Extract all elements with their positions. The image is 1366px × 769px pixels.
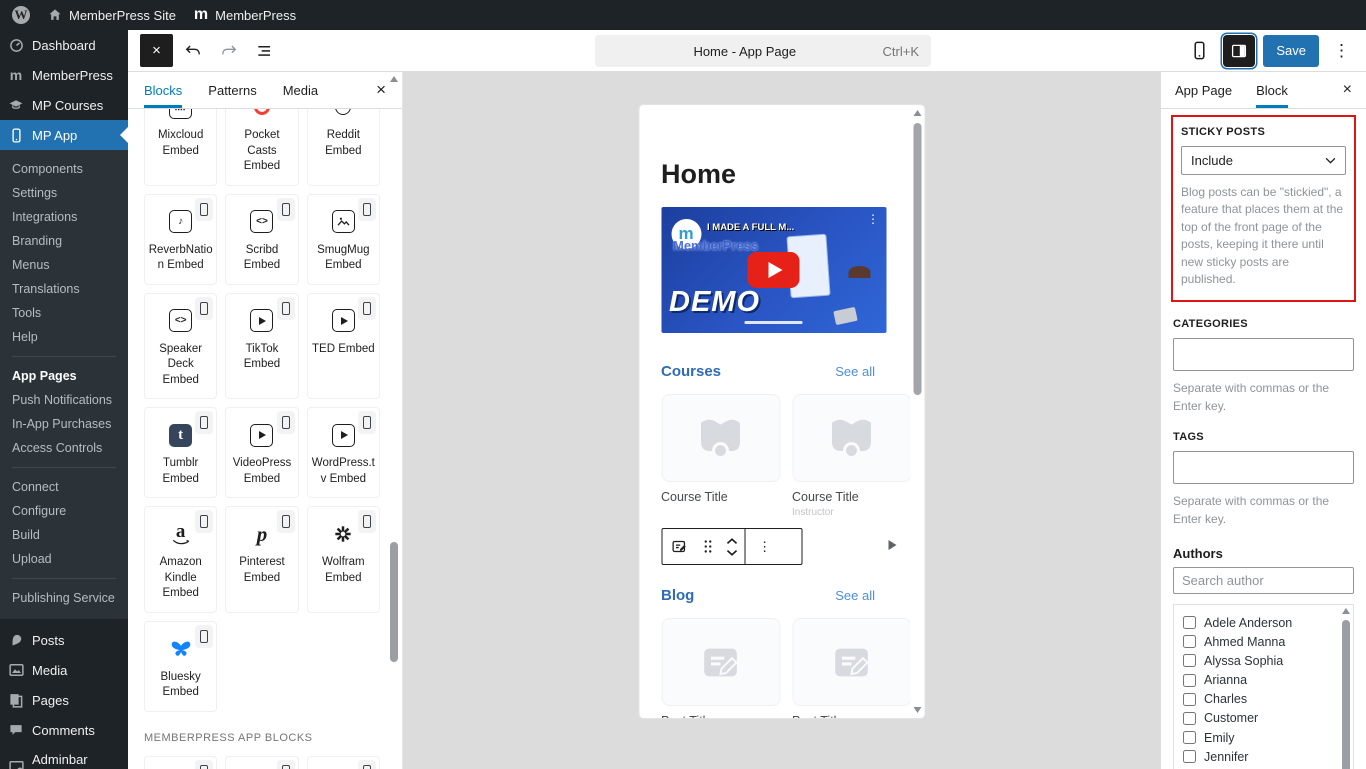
scroll-up-icon[interactable] bbox=[913, 110, 921, 116]
block-label: Wolfram Embed bbox=[311, 555, 376, 586]
author-option[interactable]: Jennifer bbox=[1183, 747, 1335, 766]
tags-help: Separate with commas or the Enter key. bbox=[1173, 493, 1354, 528]
command-shortcut: Ctrl+K bbox=[883, 44, 919, 59]
admin-bar: W MemberPress Site m MemberPress bbox=[0, 0, 1366, 30]
image-icon bbox=[332, 208, 355, 236]
memberpress-icon: m bbox=[8, 67, 24, 83]
settings-sidebar-toggle[interactable] bbox=[1223, 35, 1255, 67]
pages-icon bbox=[8, 692, 24, 708]
video-title: I MADE A FULL M... bbox=[707, 222, 794, 233]
submenu-divider bbox=[12, 356, 116, 357]
categories-help: Separate with commas or the Enter key. bbox=[1173, 380, 1354, 415]
submenu-item-publishing-service[interactable]: Publishing Service bbox=[0, 586, 128, 610]
scrollbar-thumb[interactable] bbox=[390, 542, 398, 662]
document-title: Home - App Page bbox=[607, 44, 883, 59]
list-view-button[interactable] bbox=[249, 35, 281, 67]
editor-region: × Home - App Page Ctrl+K S bbox=[128, 30, 1366, 769]
tumblr-icon: t bbox=[169, 421, 192, 449]
block-options-button[interactable]: ⋮ bbox=[745, 529, 784, 564]
block-card-pocket-casts[interactable]: Pocket Casts Embed bbox=[225, 109, 298, 186]
post-edit-icon bbox=[670, 538, 688, 555]
mobile-badge-icon bbox=[358, 411, 376, 434]
phone-icon bbox=[8, 127, 24, 143]
block-card-tiktok[interactable]: TikTok Embed bbox=[225, 293, 298, 400]
course-card-list bbox=[661, 394, 910, 482]
sidebar-item-pages[interactable]: Pages bbox=[0, 685, 128, 715]
submenu-item-menus[interactable]: Menus bbox=[0, 253, 128, 277]
move-up-down-icon bbox=[726, 537, 739, 557]
block-label: TED Embed bbox=[312, 342, 375, 358]
author-option[interactable]: Adele Anderson bbox=[1183, 613, 1335, 632]
submenu-item-push-notifications[interactable]: Push Notifications bbox=[0, 388, 128, 412]
tags-input[interactable] bbox=[1173, 451, 1354, 484]
music-note-icon: ♪ bbox=[169, 208, 192, 236]
tab-app-page[interactable]: App Page bbox=[1175, 72, 1232, 108]
sidebar-item-label: Dashboard bbox=[32, 38, 96, 53]
comment-icon bbox=[8, 722, 24, 738]
block-toolbar: ⋮ bbox=[661, 528, 802, 565]
video-menu-icon[interactable]: ⋮ bbox=[867, 212, 879, 226]
block-label: Reddit Embed bbox=[311, 128, 376, 159]
course-card[interactable] bbox=[661, 394, 780, 482]
wordpress-logo-icon[interactable]: W bbox=[12, 6, 30, 24]
video-icon bbox=[332, 421, 355, 449]
block-card-pinterest[interactable]: p Pinterest Embed bbox=[225, 506, 298, 613]
sidebar-item-label: Comments bbox=[32, 723, 95, 738]
author-option[interactable]: Emily bbox=[1183, 728, 1335, 747]
code-icon: <> bbox=[169, 307, 192, 335]
mobile-badge-icon bbox=[277, 198, 295, 221]
preview-scrollbar[interactable] bbox=[911, 107, 923, 716]
sticky-posts-help: Blog posts can be "stickied", a feature … bbox=[1181, 184, 1346, 288]
tab-patterns[interactable]: Patterns bbox=[208, 72, 256, 108]
block-label: Mixcloud Embed bbox=[148, 128, 213, 159]
authors-scrollbar[interactable] bbox=[1341, 607, 1351, 769]
scrollbar-thumb[interactable] bbox=[913, 123, 921, 395]
pinterest-icon: p bbox=[257, 520, 268, 548]
settings-tabs: App Page Block × bbox=[1161, 72, 1366, 109]
page-title[interactable]: Home bbox=[661, 159, 910, 190]
author-name: Alyssa Sophia bbox=[1204, 654, 1283, 668]
submenu-item-configure[interactable]: Configure bbox=[0, 499, 128, 523]
inserter-tabs: Blocks Patterns Media × bbox=[128, 72, 402, 109]
tags-label: TAGS bbox=[1173, 431, 1354, 443]
sidebar-item-memberpress[interactable]: m MemberPress bbox=[0, 60, 128, 90]
block-label: Speaker Deck Embed bbox=[148, 342, 213, 389]
course-placeholder-icon bbox=[695, 414, 747, 462]
submenu-item-integrations[interactable]: Integrations bbox=[0, 205, 128, 229]
submenu-item-build[interactable]: Build bbox=[0, 523, 128, 547]
author-name: Charles bbox=[1204, 692, 1247, 706]
post-card[interactable] bbox=[792, 618, 910, 706]
author-checkbox[interactable] bbox=[1183, 693, 1196, 706]
brand-name: MemberPress bbox=[215, 8, 296, 23]
block-inserter-panel: Blocks Patterns Media × Mixcloud Embed bbox=[128, 72, 403, 769]
block-card-mp-course[interactable] bbox=[307, 756, 380, 769]
sidebar-item-mp-courses[interactable]: MP Courses bbox=[0, 90, 128, 120]
author-name: Ahmed Manna bbox=[1204, 635, 1285, 649]
block-card-wolfram[interactable]: Wolfram Embed bbox=[307, 506, 380, 613]
close-settings-icon[interactable]: × bbox=[1343, 81, 1352, 99]
save-button[interactable]: Save bbox=[1263, 35, 1319, 67]
block-card-tumblr[interactable]: t Tumblr Embed bbox=[144, 407, 217, 498]
block-label: Pinterest Embed bbox=[229, 555, 294, 586]
block-card-bluesky[interactable]: Bluesky Embed bbox=[144, 621, 217, 712]
course-instructor: Instructor bbox=[792, 507, 911, 518]
block-card-reverbnation[interactable]: ♪ ReverbNation Embed bbox=[144, 194, 217, 285]
inserter-scroll-area: Mixcloud Embed Pocket Casts Embed Reddit… bbox=[128, 109, 402, 769]
block-label: SmugMug Embed bbox=[311, 243, 376, 274]
mobile-badge-icon bbox=[195, 297, 213, 320]
sticky-posts-value: Include bbox=[1191, 153, 1233, 168]
post-title: Post Title bbox=[661, 714, 780, 718]
categories-input[interactable] bbox=[1173, 338, 1354, 371]
drag-dots-icon bbox=[704, 539, 713, 554]
submenu-item-translations[interactable]: Translations bbox=[0, 277, 128, 301]
submenu-item-help[interactable]: Help bbox=[0, 325, 128, 349]
post-card-labels: Post Title Post Title bbox=[661, 714, 910, 718]
author-option[interactable]: Alyssa Sophia bbox=[1183, 651, 1335, 670]
block-label: WordPress.tv Embed bbox=[311, 456, 376, 487]
submenu-item-access-controls[interactable]: Access Controls bbox=[0, 436, 128, 460]
drag-handle[interactable] bbox=[696, 529, 720, 564]
mobile-badge-icon bbox=[277, 297, 295, 320]
block-label: Pocket Casts Embed bbox=[229, 128, 294, 175]
video-brand-text: MemberPress bbox=[673, 238, 758, 253]
carousel-next-icon[interactable] bbox=[888, 540, 896, 550]
mobile-badge-icon bbox=[358, 510, 376, 533]
mobile-badge-icon bbox=[358, 760, 376, 769]
author-checkbox[interactable] bbox=[1183, 674, 1196, 687]
video-icon bbox=[250, 421, 273, 449]
author-checkbox[interactable] bbox=[1183, 616, 1196, 629]
author-name: Jennifer bbox=[1204, 750, 1248, 764]
phone-icon bbox=[1192, 41, 1207, 60]
close-inserter-button[interactable]: × bbox=[140, 34, 173, 67]
options-menu-button[interactable]: ⋮ bbox=[1327, 37, 1356, 65]
block-label: Amazon Kindle Embed bbox=[148, 555, 213, 602]
courses-icon bbox=[8, 97, 24, 113]
wolfram-icon bbox=[334, 520, 352, 548]
block-card-videopress[interactable]: VideoPress Embed bbox=[225, 407, 298, 498]
block-label: Bluesky Embed bbox=[148, 670, 213, 701]
mobile-badge-icon bbox=[195, 760, 213, 769]
sidebar-item-label: Adminbar Editor bbox=[32, 752, 120, 769]
tab-media[interactable]: Media bbox=[283, 72, 318, 108]
video-icon bbox=[250, 307, 273, 335]
submenu-item-in-app-purchases[interactable]: In-App Purchases bbox=[0, 412, 128, 436]
courses-see-all-link[interactable]: See all bbox=[835, 364, 875, 379]
block-card-amazon-kindle[interactable]: a Amazon Kindle Embed bbox=[144, 506, 217, 613]
sidebar-item-label: Posts bbox=[32, 633, 65, 648]
media-icon bbox=[8, 662, 24, 678]
undo-button[interactable] bbox=[177, 35, 209, 67]
post-placeholder-icon bbox=[696, 639, 746, 685]
mobile-badge-icon bbox=[358, 297, 376, 320]
submenu-divider bbox=[12, 578, 116, 579]
sidebar-item-label: MP Courses bbox=[32, 98, 103, 113]
post-card[interactable] bbox=[661, 618, 780, 706]
site-name: MemberPress Site bbox=[69, 8, 176, 23]
courses-section-header: Courses See all bbox=[661, 363, 875, 380]
block-label: Scribd Embed bbox=[229, 243, 294, 274]
author-checkbox[interactable] bbox=[1183, 635, 1196, 648]
post-placeholder-icon bbox=[827, 639, 877, 685]
sticky-posts-select[interactable]: Include bbox=[1181, 146, 1346, 175]
authors-checklist: Adele Anderson Ahmed Manna Alyssa Sophia… bbox=[1173, 604, 1354, 769]
mobile-badge-icon bbox=[358, 198, 376, 221]
author-checkbox[interactable] bbox=[1183, 712, 1196, 725]
tab-blocks[interactable]: Blocks bbox=[144, 72, 182, 108]
author-checkbox[interactable] bbox=[1183, 750, 1196, 763]
author-name: Adele Anderson bbox=[1204, 616, 1292, 630]
dashboard-icon bbox=[8, 37, 24, 53]
author-option[interactable]: Arianna bbox=[1183, 670, 1335, 689]
sidebar-item-label: Pages bbox=[32, 693, 69, 708]
block-card-mp-globe[interactable] bbox=[225, 756, 298, 769]
blog-see-all-link[interactable]: See all bbox=[835, 588, 875, 603]
block-card-mp-posts[interactable] bbox=[144, 756, 217, 769]
site-link[interactable]: MemberPress Site bbox=[48, 8, 176, 23]
memberpress-blocks-heading: MEMBERPRESS APP BLOCKS bbox=[144, 732, 380, 744]
redo-button[interactable] bbox=[213, 35, 245, 67]
inserter-scrollbar[interactable] bbox=[389, 74, 399, 767]
reddit-icon bbox=[335, 109, 351, 121]
author-checkbox[interactable] bbox=[1183, 654, 1196, 667]
course-card-labels: Course Title Course Title Instructor bbox=[661, 490, 910, 518]
categories-label: CATEGORIES bbox=[1173, 318, 1354, 330]
submenu-item-components[interactable]: Components bbox=[0, 157, 128, 181]
mobile-badge-icon bbox=[195, 625, 213, 648]
mobile-badge-icon bbox=[195, 198, 213, 221]
sidebar-item-posts[interactable]: Posts bbox=[0, 625, 128, 655]
document-bar[interactable]: Home - App Page Ctrl+K bbox=[595, 35, 931, 67]
mobile-preview-frame: Home m MemberPress I MADE A FULL M... ⋮ … bbox=[639, 105, 924, 718]
authors-label: Authors bbox=[1173, 546, 1354, 561]
courses-heading[interactable]: Courses bbox=[661, 363, 721, 380]
sticky-posts-label: STICKY POSTS bbox=[1181, 126, 1346, 138]
block-card-scribd[interactable]: <> Scribd Embed bbox=[225, 194, 298, 285]
submenu-item-app-pages[interactable]: App Pages bbox=[0, 364, 128, 388]
course-placeholder-icon bbox=[826, 414, 878, 462]
close-panel-icon[interactable]: × bbox=[376, 80, 386, 100]
block-toolbar-row: ⋮ bbox=[661, 528, 910, 565]
mobile-badge-icon bbox=[277, 411, 295, 434]
home-icon bbox=[48, 8, 62, 22]
post-title: Post Title bbox=[792, 714, 911, 718]
block-card-reddit[interactable]: Reddit Embed bbox=[307, 109, 380, 186]
sidebar-item-dashboard[interactable]: Dashboard bbox=[0, 30, 128, 60]
block-mover[interactable] bbox=[720, 529, 744, 564]
editor-canvas: Home m MemberPress I MADE A FULL M... ⋮ … bbox=[403, 72, 1160, 769]
block-card-speaker-deck[interactable]: <> Speaker Deck Embed bbox=[144, 293, 217, 400]
video-embed-block[interactable]: m MemberPress I MADE A FULL M... ⋮ DEMO bbox=[661, 207, 886, 333]
cloud-icon bbox=[169, 109, 192, 121]
block-card-smugmug[interactable]: SmugMug Embed bbox=[307, 194, 380, 285]
author-checkbox[interactable] bbox=[1183, 731, 1196, 744]
submenu-divider bbox=[12, 467, 116, 468]
settings-sidebar: App Page Block × STICKY POSTS Include Bl… bbox=[1160, 72, 1366, 769]
author-search-input[interactable] bbox=[1173, 567, 1354, 594]
submenu-item-upload[interactable]: Upload bbox=[0, 547, 128, 571]
video-caption-line bbox=[745, 321, 803, 324]
video-presenter-figure bbox=[836, 269, 882, 333]
butterfly-icon bbox=[170, 635, 192, 663]
scroll-up-icon[interactable] bbox=[390, 76, 398, 82]
mp-app-submenu: Components Settings Integrations Brandin… bbox=[0, 150, 128, 619]
sidebar-item-mp-app[interactable]: MP App bbox=[0, 120, 128, 150]
mobile-badge-icon bbox=[195, 411, 213, 434]
block-label: VideoPress Embed bbox=[229, 456, 294, 487]
course-card[interactable] bbox=[792, 394, 910, 482]
memberpress-admin-link[interactable]: m MemberPress bbox=[194, 7, 296, 23]
blog-heading[interactable]: Blog bbox=[661, 587, 694, 604]
block-card-ted[interactable]: TED Embed bbox=[307, 293, 380, 400]
code-icon: <> bbox=[250, 208, 273, 236]
sidebar-item-label: MP App bbox=[32, 128, 77, 143]
author-option[interactable]: Customer bbox=[1183, 709, 1335, 728]
sidebar-layout-icon bbox=[1231, 43, 1247, 59]
mobile-badge-icon bbox=[277, 510, 295, 533]
course-title: Course Title bbox=[661, 490, 780, 504]
sidebar-item-adminbar-editor[interactable]: Adminbar Editor bbox=[0, 745, 128, 769]
preview-device-button[interactable] bbox=[1183, 35, 1215, 67]
author-option[interactable]: Charles bbox=[1183, 690, 1335, 709]
block-type-button[interactable] bbox=[662, 529, 696, 564]
editor-header: × Home - App Page Ctrl+K S bbox=[128, 30, 1366, 72]
scroll-up-icon[interactable] bbox=[1342, 608, 1350, 614]
amazon-icon: a bbox=[172, 520, 190, 548]
sidebar-item-media[interactable]: Media bbox=[0, 655, 128, 685]
mobile-badge-icon bbox=[195, 510, 213, 533]
sidebar-item-label: Media bbox=[32, 663, 67, 678]
author-option[interactable]: Ahmed Manna bbox=[1183, 632, 1335, 651]
block-label: Tumblr Embed bbox=[148, 456, 213, 487]
author-name: Customer bbox=[1204, 711, 1258, 725]
play-button-icon[interactable] bbox=[748, 252, 800, 288]
block-card-mixcloud[interactable]: Mixcloud Embed bbox=[144, 109, 217, 186]
annotation-highlight: STICKY POSTS Include Blog posts can be "… bbox=[1171, 115, 1356, 302]
scrollbar-thumb[interactable] bbox=[1342, 620, 1350, 769]
block-label: ReverbNation Embed bbox=[148, 243, 213, 274]
submenu-item-connect[interactable]: Connect bbox=[0, 475, 128, 499]
video-icon bbox=[332, 307, 355, 335]
mobile-badge-icon bbox=[277, 760, 295, 769]
author-name: Arianna bbox=[1204, 673, 1247, 687]
blog-section-header: Blog See all bbox=[661, 587, 875, 604]
post-card-list bbox=[661, 618, 910, 706]
submenu-item-tools[interactable]: Tools bbox=[0, 301, 128, 325]
sidebar-item-label: MemberPress bbox=[32, 68, 113, 83]
monitor-gear-icon bbox=[8, 759, 24, 769]
video-demo-text: DEMO bbox=[669, 286, 760, 319]
pin-icon bbox=[8, 632, 24, 648]
tab-block[interactable]: Block bbox=[1256, 72, 1288, 108]
submenu-item-settings[interactable]: Settings bbox=[0, 181, 128, 205]
course-title: Course Title bbox=[792, 490, 911, 504]
chevron-down-icon bbox=[1325, 157, 1336, 164]
memberpress-logo-icon: m bbox=[194, 7, 208, 23]
block-card-wordpress-tv[interactable]: WordPress.tv Embed bbox=[307, 407, 380, 498]
block-label: TikTok Embed bbox=[229, 342, 294, 373]
author-name: Emily bbox=[1204, 731, 1235, 745]
scroll-down-icon[interactable] bbox=[913, 707, 921, 713]
sidebar-item-comments[interactable]: Comments bbox=[0, 715, 128, 745]
submenu-item-branding[interactable]: Branding bbox=[0, 229, 128, 253]
pocket-casts-icon bbox=[254, 109, 270, 121]
admin-sidebar: Dashboard m MemberPress MP Courses MP Ap… bbox=[0, 30, 128, 769]
